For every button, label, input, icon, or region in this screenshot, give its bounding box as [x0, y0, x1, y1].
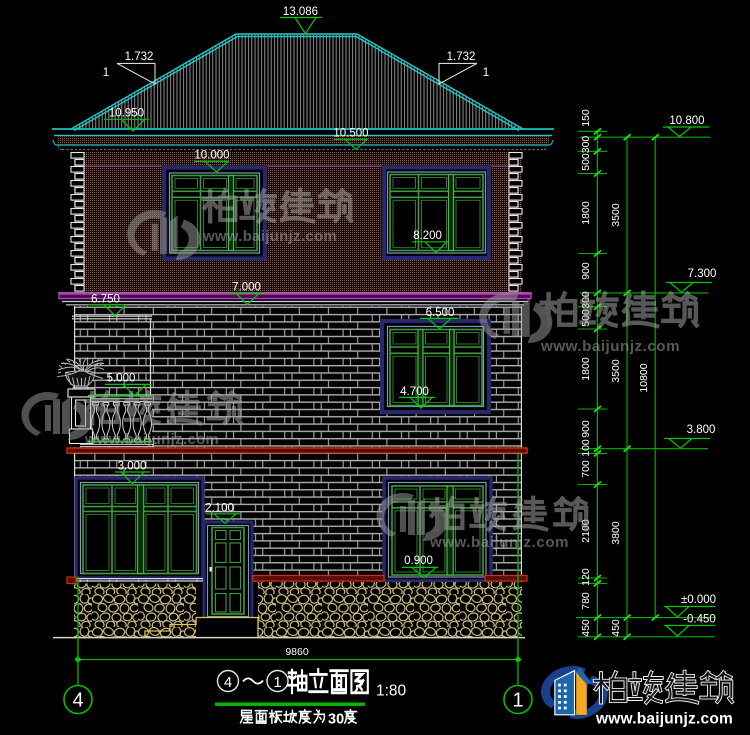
svg-text:5.000: 5.000	[107, 373, 136, 385]
svg-text:1: 1	[483, 67, 489, 79]
svg-text:1: 1	[512, 690, 523, 712]
svg-text:1:80: 1:80	[376, 683, 407, 700]
svg-text:www.baijunjz.com: www.baijunjz.com	[540, 338, 680, 355]
svg-text:10800: 10800	[638, 363, 650, 392]
svg-text:900: 900	[580, 262, 592, 280]
svg-text:4: 4	[224, 674, 232, 691]
svg-text:±0.000: ±0.000	[681, 594, 716, 606]
svg-text:www.baijunjz.com: www.baijunjz.com	[595, 711, 733, 728]
svg-text:4: 4	[72, 690, 83, 712]
svg-text:450: 450	[610, 619, 622, 637]
svg-text:7.300: 7.300	[688, 268, 717, 280]
svg-text:450: 450	[580, 619, 592, 637]
svg-text:300: 300	[580, 136, 592, 154]
svg-text:700: 700	[580, 460, 592, 478]
svg-text:780: 780	[580, 592, 592, 610]
svg-text:www.baijunjz.com: www.baijunjz.com	[84, 432, 219, 448]
svg-text:3500: 3500	[610, 203, 622, 227]
svg-text:6.500: 6.500	[426, 307, 455, 319]
svg-text:10.950: 10.950	[109, 108, 144, 120]
svg-text:150: 150	[580, 109, 592, 127]
svg-text:100: 100	[580, 439, 592, 457]
svg-text:1: 1	[273, 674, 281, 691]
svg-text:6.750: 6.750	[91, 294, 120, 306]
svg-text:1800: 1800	[580, 201, 592, 225]
svg-text:1.732: 1.732	[125, 51, 154, 63]
svg-text:13.086: 13.086	[283, 6, 318, 18]
svg-text:10.500: 10.500	[333, 128, 368, 140]
svg-text:-0.450: -0.450	[683, 614, 716, 626]
svg-text:www.baijunjz.com: www.baijunjz.com	[202, 229, 337, 245]
svg-text:10.000: 10.000	[194, 150, 229, 162]
svg-text:30: 30	[328, 712, 344, 728]
svg-text:1.732: 1.732	[447, 51, 476, 63]
svg-text:1800: 1800	[580, 357, 592, 381]
svg-text:1: 1	[103, 67, 109, 79]
svg-text:7.000: 7.000	[232, 282, 261, 294]
svg-text:8.200: 8.200	[413, 230, 442, 242]
svg-text:www.baijunjz.com: www.baijunjz.com	[429, 534, 569, 551]
svg-text:900: 900	[580, 420, 592, 438]
svg-text:9860: 9860	[285, 646, 309, 658]
svg-text:3800: 3800	[610, 521, 622, 545]
svg-text:4.700: 4.700	[400, 386, 429, 398]
svg-text:0.900: 0.900	[404, 555, 433, 567]
svg-text:120: 120	[580, 568, 592, 586]
svg-text:3.800: 3.800	[687, 424, 716, 436]
svg-text:2.100: 2.100	[205, 503, 234, 515]
svg-text:3500: 3500	[610, 359, 622, 383]
svg-text:10.800: 10.800	[669, 115, 704, 127]
svg-text:500: 500	[580, 153, 592, 171]
svg-text:3.000: 3.000	[118, 461, 147, 473]
